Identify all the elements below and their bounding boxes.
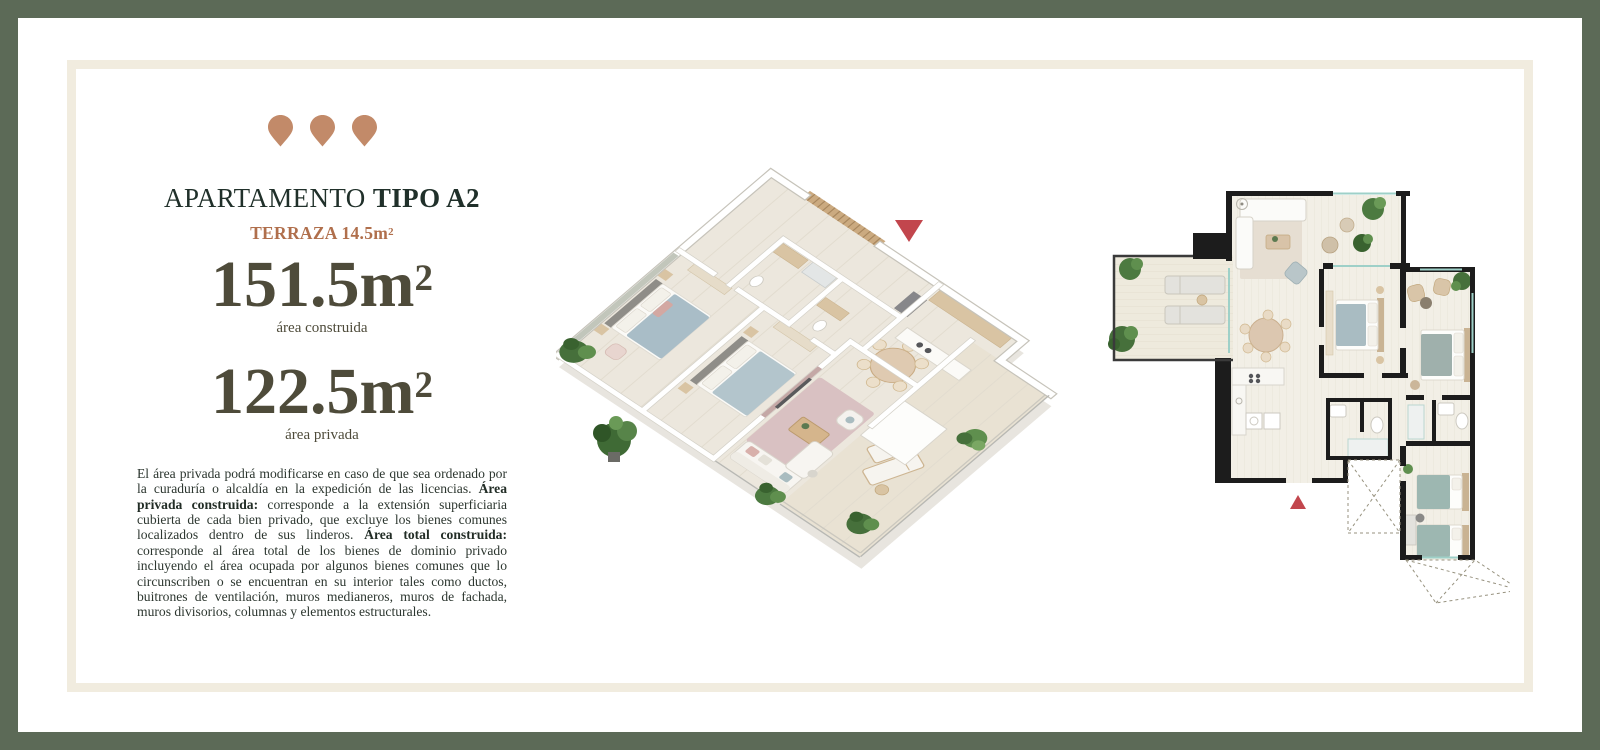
location-pin-icon xyxy=(309,114,336,148)
built-area-sup: 2 xyxy=(415,257,433,298)
private-area-value: 122.5m2 xyxy=(137,359,507,425)
terrace-value: TERRAZA 14.5m xyxy=(250,223,388,243)
brochure-page: APARTAMENTO TIPO A2 TERRAZA 14.5m2 151.5… xyxy=(0,0,1600,750)
pin-row xyxy=(137,114,507,148)
entrance-marker-icon xyxy=(895,220,923,242)
built-area-number: 151.5m xyxy=(211,248,414,321)
foreground-plant xyxy=(593,416,637,462)
page-title: APARTAMENTO TIPO A2 xyxy=(137,183,507,214)
apartment-2d-floor-plan xyxy=(1090,173,1510,621)
terrace-sup: 2 xyxy=(388,226,394,238)
legal-disclaimer-text: El área privada podrá modificarse en cas… xyxy=(137,466,507,620)
terrace-area-label: TERRAZA 14.5m2 xyxy=(137,223,507,244)
private-area-number: 122.5m xyxy=(211,355,414,428)
iso-apartment xyxy=(556,165,1078,570)
built-area-caption: área construida xyxy=(137,320,507,337)
title-regular: APARTAMENTO xyxy=(164,183,366,213)
title-bold: TIPO A2 xyxy=(373,183,480,213)
apartment-3d-isometric-render xyxy=(556,148,1078,618)
living-room-2d xyxy=(1236,199,1309,286)
private-area-caption: área privada xyxy=(137,427,507,444)
built-area-value: 151.5m2 xyxy=(137,252,507,318)
entrance-marker-icon xyxy=(1290,495,1306,509)
private-area-sup: 2 xyxy=(415,364,433,405)
apartment-info-panel: APARTAMENTO TIPO A2 TERRAZA 14.5m2 151.5… xyxy=(137,96,507,620)
location-pin-icon xyxy=(351,114,378,148)
location-pin-icon xyxy=(267,114,294,148)
